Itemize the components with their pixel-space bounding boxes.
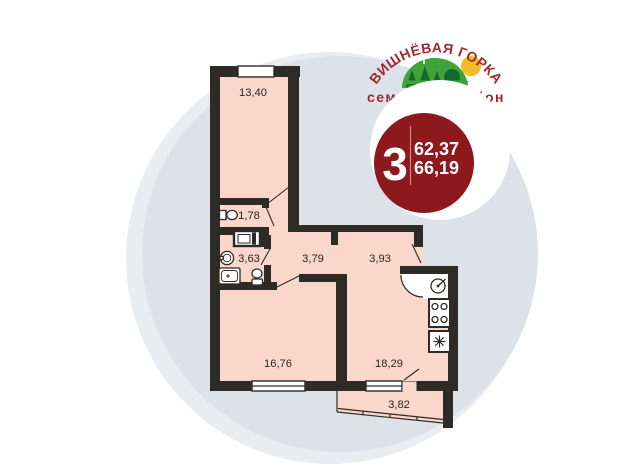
room-label-balcony: 3,82	[388, 399, 410, 411]
sink-icon	[431, 279, 446, 293]
room-label-bathroom: 3,63	[238, 253, 260, 265]
bathroom-toilet-icon	[252, 269, 263, 285]
stove-icon	[429, 299, 450, 327]
badge-area-living: 62,37	[414, 139, 459, 159]
room-label-hall-entry: 3,93	[369, 253, 391, 265]
room-label-kitchen: 18,29	[375, 358, 403, 370]
window-living	[252, 381, 305, 391]
room-label-wc: 1,78	[238, 210, 260, 222]
floor-plan-poster: ВИШНЁВАЯ ГОРКА семейный район 3 62,37 66…	[0, 0, 644, 470]
washbasin-icon	[220, 251, 234, 264]
fridge-icon	[429, 331, 450, 352]
balcony-door-opening	[403, 382, 417, 392]
window-bedroom	[238, 66, 274, 77]
wc-toilet-icon	[220, 210, 238, 219]
window-kitchen	[366, 381, 402, 391]
bathtub-icon	[219, 268, 240, 284]
badge-rooms-count: 3	[382, 138, 408, 190]
poster-canvas: ВИШНЁВАЯ ГОРКА семейный район 3 62,37 66…	[0, 0, 644, 470]
area-badge: 3 62,37 66,19	[370, 80, 510, 220]
room-label-living: 16,76	[264, 358, 292, 370]
badge-area-total: 66,19	[414, 158, 459, 178]
room-label-bedroom: 13,40	[239, 87, 267, 99]
washing-machine-icon	[234, 231, 260, 246]
room-label-hallway: 3,79	[302, 253, 324, 265]
